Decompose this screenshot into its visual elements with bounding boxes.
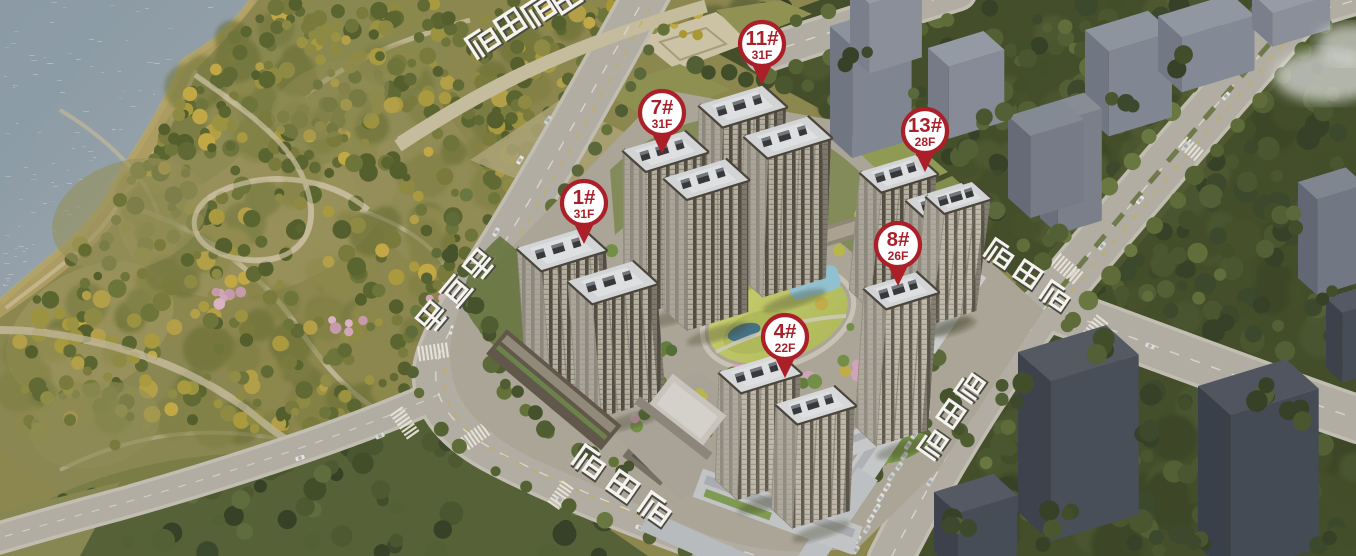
svg-text:22F: 22F <box>775 341 796 355</box>
svg-text:11#: 11# <box>745 27 779 50</box>
svg-text:8#: 8# <box>887 228 910 251</box>
svg-text:31F: 31F <box>574 207 595 221</box>
svg-text:31F: 31F <box>752 48 773 62</box>
svg-text:26F: 26F <box>888 249 909 263</box>
svg-text:4#: 4# <box>774 320 797 343</box>
svg-text:1#: 1# <box>573 186 596 209</box>
svg-text:13#: 13# <box>908 114 943 137</box>
svg-text:7#: 7# <box>651 96 674 119</box>
svg-text:31F: 31F <box>652 117 673 131</box>
svg-text:28F: 28F <box>915 135 936 149</box>
